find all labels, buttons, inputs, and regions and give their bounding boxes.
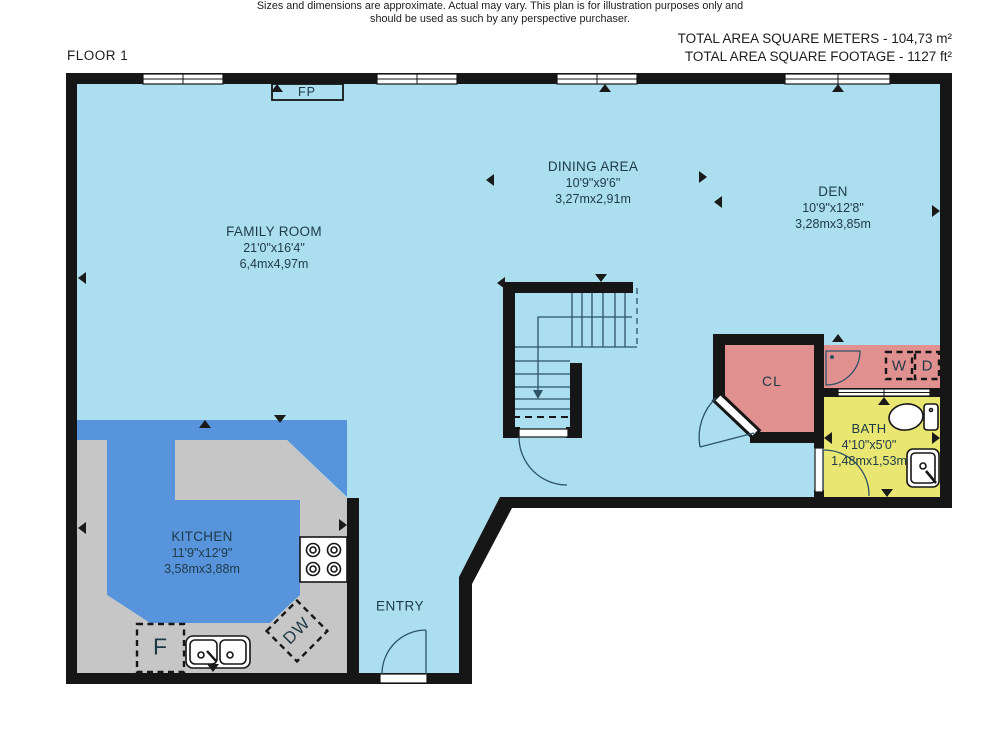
room-label-kitchen: KITCHEN 11'9"x12'9" 3,58mx3,88m: [164, 529, 240, 577]
bath-sink-icon: [907, 449, 939, 487]
stair-door: [519, 429, 568, 437]
window-icon: [785, 74, 890, 84]
dryer-label: D: [922, 358, 933, 375]
room-label-dining-area: DINING AREA 10'9"x9'6" 3,27mx2,91m: [548, 159, 638, 207]
room-label-den: DEN 10'9"x12'8" 3,28mx3,85m: [795, 184, 871, 232]
kitchen-sink-icon: [186, 636, 250, 668]
room-label-family-room: FAMILY ROOM 21'0"x16'4" 6,4mx4,97m: [226, 224, 322, 272]
fridge-label: F: [153, 634, 167, 661]
total-area-imperial: TOTAL AREA SQUARE FOOTAGE - 1127 ft²: [678, 48, 952, 66]
floor-plan-page: FLOOR 1 TOTAL AREA SQUARE METERS - 104,7…: [0, 0, 1000, 739]
window-icon: [557, 74, 637, 84]
fireplace-label: FP: [298, 85, 316, 99]
kitchen-entry-wall: [347, 498, 359, 673]
washer-label: W: [892, 358, 906, 375]
room-label-bath: BATH 4'10"x5'0" 1,48mx1,53m: [831, 421, 907, 469]
window-icon: [143, 74, 223, 84]
floor-title: FLOOR 1: [67, 48, 128, 63]
entry-door: [380, 674, 427, 683]
room-label-closet: CL: [762, 373, 782, 389]
floor-plan-canvas: [0, 0, 1000, 739]
window-icon: [377, 74, 457, 84]
stove-icon: [300, 537, 347, 582]
laundry-bath-opening: [838, 389, 930, 396]
bath-door: [815, 448, 823, 492]
room-label-entry: ENTRY: [376, 599, 424, 614]
total-area-metric: TOTAL AREA SQUARE METERS - 104,73 m²: [678, 30, 952, 48]
total-area-block: TOTAL AREA SQUARE METERS - 104,73 m² TOT…: [678, 30, 952, 66]
